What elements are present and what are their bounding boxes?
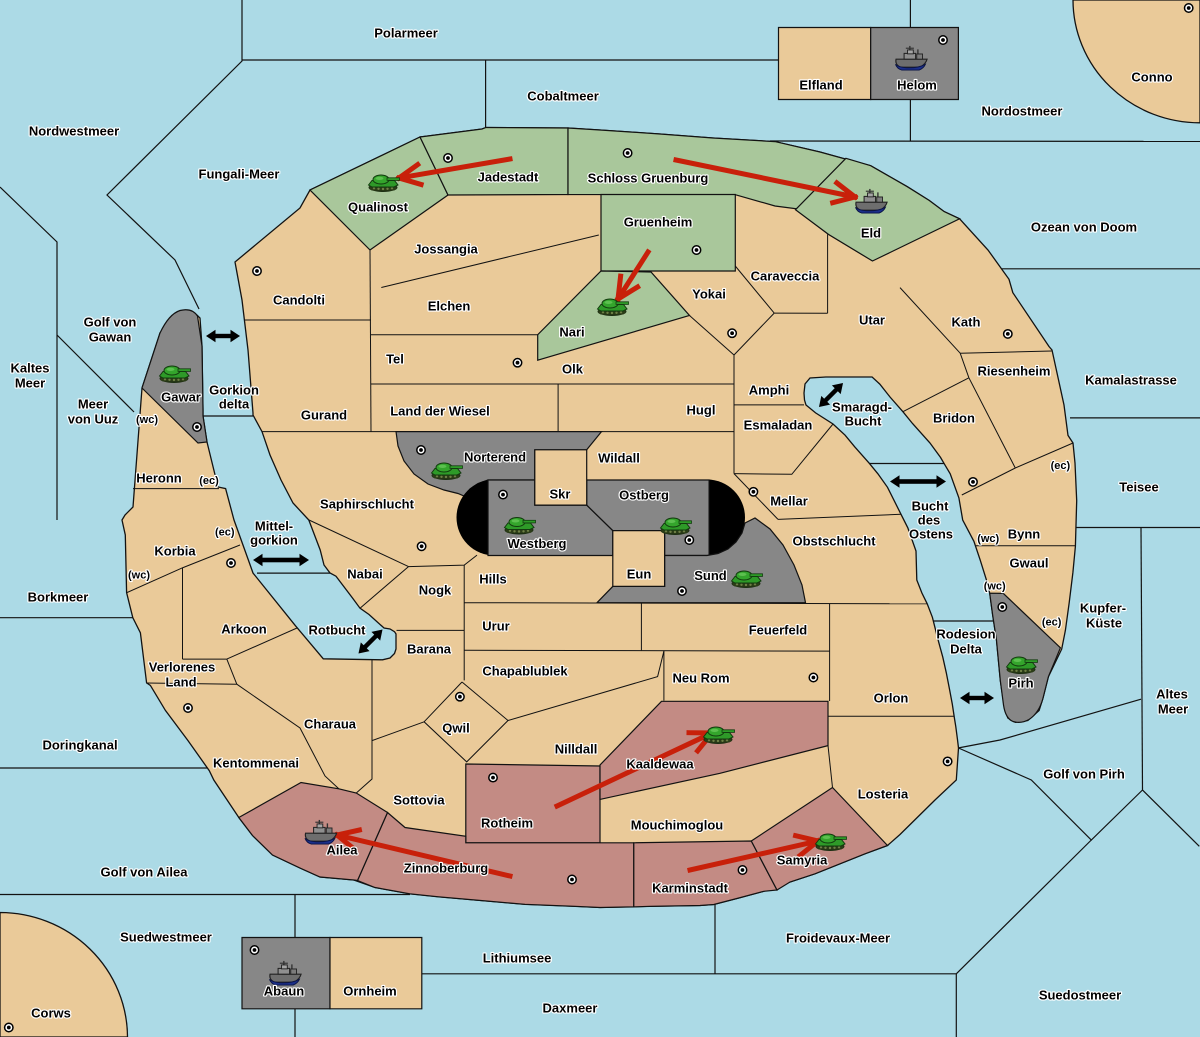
svg-text:Nordwestmeer: Nordwestmeer [29,124,119,139]
svg-text:Suedwestmeer: Suedwestmeer [120,930,212,945]
svg-text:Suedostmeer: Suedostmeer [1039,988,1121,1003]
svg-text:Rotbucht: Rotbucht [308,623,366,638]
svg-text:Schloss Gruenburg: Schloss Gruenburg [588,171,709,186]
svg-text:Golf von Ailea: Golf von Ailea [101,865,189,880]
svg-text:des: des [918,513,940,528]
svg-text:Gawan: Gawan [89,330,132,345]
svg-text:Nordostmeer: Nordostmeer [982,104,1063,119]
svg-text:Golf von: Golf von [84,315,137,330]
svg-text:Kamalastrasse: Kamalastrasse [1085,373,1177,388]
svg-text:Daxmeer: Daxmeer [543,1001,598,1016]
svg-text:Smaragd-: Smaragd- [832,400,892,415]
svg-text:Kupfer-: Kupfer- [1080,601,1126,616]
svg-text:Kaltes: Kaltes [10,361,49,376]
svg-text:Mittel-: Mittel- [255,519,293,534]
svg-text:Ostens: Ostens [909,527,953,542]
svg-text:Gorkion: Gorkion [209,383,259,398]
svg-text:(ec): (ec) [1051,460,1071,472]
svg-text:Verlorenes: Verlorenes [149,660,216,675]
svg-text:Nogk: Nogk [419,583,452,598]
svg-text:Bridon: Bridon [933,411,975,426]
svg-text:Mouchimoglou: Mouchimoglou [631,818,723,833]
svg-text:Westberg: Westberg [508,536,567,551]
svg-text:Orlon: Orlon [874,691,909,706]
svg-text:Olk: Olk [562,362,584,377]
svg-text:Rodesion: Rodesion [936,627,995,642]
svg-text:(ec): (ec) [1042,617,1062,629]
svg-text:Obstschlucht: Obstschlucht [792,534,876,549]
svg-text:Kath: Kath [952,315,981,330]
svg-text:Kentommenai: Kentommenai [213,756,299,771]
svg-text:gorkion: gorkion [250,533,298,548]
svg-text:Norterend: Norterend [464,450,526,465]
svg-text:Bucht: Bucht [845,414,883,429]
svg-text:Yokai: Yokai [692,287,726,302]
svg-text:Ozean von Doom: Ozean von Doom [1031,220,1137,235]
svg-text:(ec): (ec) [215,526,235,538]
svg-text:Saphirschlucht: Saphirschlucht [320,497,415,512]
svg-text:Meer: Meer [15,376,45,391]
svg-text:Neu Rom: Neu Rom [672,671,729,686]
svg-text:Helom: Helom [897,78,937,93]
svg-text:Ornheim: Ornheim [343,984,396,999]
svg-text:Skr: Skr [550,487,571,502]
svg-text:Hills: Hills [479,572,506,587]
svg-text:Karminstadt: Karminstadt [652,881,729,896]
svg-text:Rotheim: Rotheim [481,816,533,831]
svg-text:Abaun: Abaun [264,984,305,999]
svg-text:Lithiumsee: Lithiumsee [483,951,552,966]
svg-text:Candolti: Candolti [273,293,325,308]
svg-text:(wc): (wc) [128,570,150,582]
svg-text:Qwil: Qwil [442,721,469,736]
svg-text:Elchen: Elchen [428,299,471,314]
svg-text:von Uuz: von Uuz [68,412,119,427]
svg-text:Esmaladan: Esmaladan [744,418,813,433]
svg-text:Eun: Eun [627,567,652,582]
svg-text:Cobaltmeer: Cobaltmeer [527,89,599,104]
svg-text:Charaua: Charaua [304,717,357,732]
svg-text:Froidevaux-Meer: Froidevaux-Meer [786,931,890,946]
svg-text:Hugl: Hugl [687,403,716,418]
svg-text:Jadestadt: Jadestadt [478,170,539,185]
svg-text:Chapablublek: Chapablublek [482,664,568,679]
svg-text:(ec): (ec) [199,475,219,487]
svg-text:Elfland: Elfland [799,78,842,93]
svg-text:Gawar: Gawar [161,390,201,405]
svg-text:Nilldall: Nilldall [555,742,598,757]
svg-text:Teisee: Teisee [1119,480,1159,495]
svg-text:Ostberg: Ostberg [619,488,669,503]
svg-text:Gwaul: Gwaul [1009,556,1048,571]
svg-text:Ailea: Ailea [326,843,358,858]
svg-text:Heronn: Heronn [136,471,182,486]
svg-text:(wc): (wc) [136,414,158,426]
svg-text:Borkmeer: Borkmeer [28,590,89,605]
svg-text:delta: delta [219,397,250,412]
svg-text:Sund: Sund [694,568,727,583]
svg-text:Land der Wiesel: Land der Wiesel [390,404,490,419]
svg-text:Küste: Küste [1086,616,1122,631]
svg-text:Samyria: Samyria [777,853,828,868]
svg-text:Corws: Corws [31,1006,71,1021]
svg-text:Arkoon: Arkoon [221,622,267,637]
svg-text:Meer: Meer [78,397,108,412]
svg-text:Gruenheim: Gruenheim [624,215,693,230]
svg-text:Altes: Altes [1156,687,1188,702]
svg-text:Barana: Barana [407,642,452,657]
svg-text:Mellar: Mellar [770,494,808,509]
svg-text:Tel: Tel [386,352,404,367]
svg-text:Eld: Eld [861,226,881,241]
svg-text:Wildall: Wildall [598,451,640,466]
svg-text:Meer: Meer [1158,702,1188,717]
svg-text:Nabai: Nabai [347,567,382,582]
svg-text:Losteria: Losteria [858,787,909,802]
svg-text:Qualinost: Qualinost [348,200,409,215]
svg-text:Conno: Conno [1131,70,1172,85]
svg-text:Utar: Utar [859,313,885,328]
svg-text:Nari: Nari [559,325,584,340]
svg-text:Pirh: Pirh [1008,676,1033,691]
svg-text:Feuerfeld: Feuerfeld [749,623,808,638]
svg-text:Golf von Pirh: Golf von Pirh [1043,767,1125,782]
svg-text:Polarmeer: Polarmeer [374,26,438,41]
svg-text:Bynn: Bynn [1008,527,1041,542]
svg-text:Bucht: Bucht [912,499,950,514]
svg-text:Sottovia: Sottovia [393,793,445,808]
svg-text:Land: Land [165,675,196,690]
svg-text:Doringkanal: Doringkanal [42,738,117,753]
svg-text:Zinnoberburg: Zinnoberburg [404,861,489,876]
svg-text:Amphi: Amphi [749,383,789,398]
svg-text:Jossangia: Jossangia [414,242,478,257]
svg-text:Fungali-Meer: Fungali-Meer [199,167,280,182]
svg-text:Delta: Delta [950,642,983,657]
svg-text:Gurand: Gurand [301,408,347,423]
svg-text:Caraveccia: Caraveccia [751,269,820,284]
svg-text:Korbia: Korbia [154,544,196,559]
svg-text:(wc): (wc) [977,533,999,545]
svg-text:(wc): (wc) [984,581,1006,593]
svg-text:Kaaldewaa: Kaaldewaa [626,757,694,772]
svg-text:Urur: Urur [482,619,509,634]
svg-text:Riesenheim: Riesenheim [978,364,1051,379]
